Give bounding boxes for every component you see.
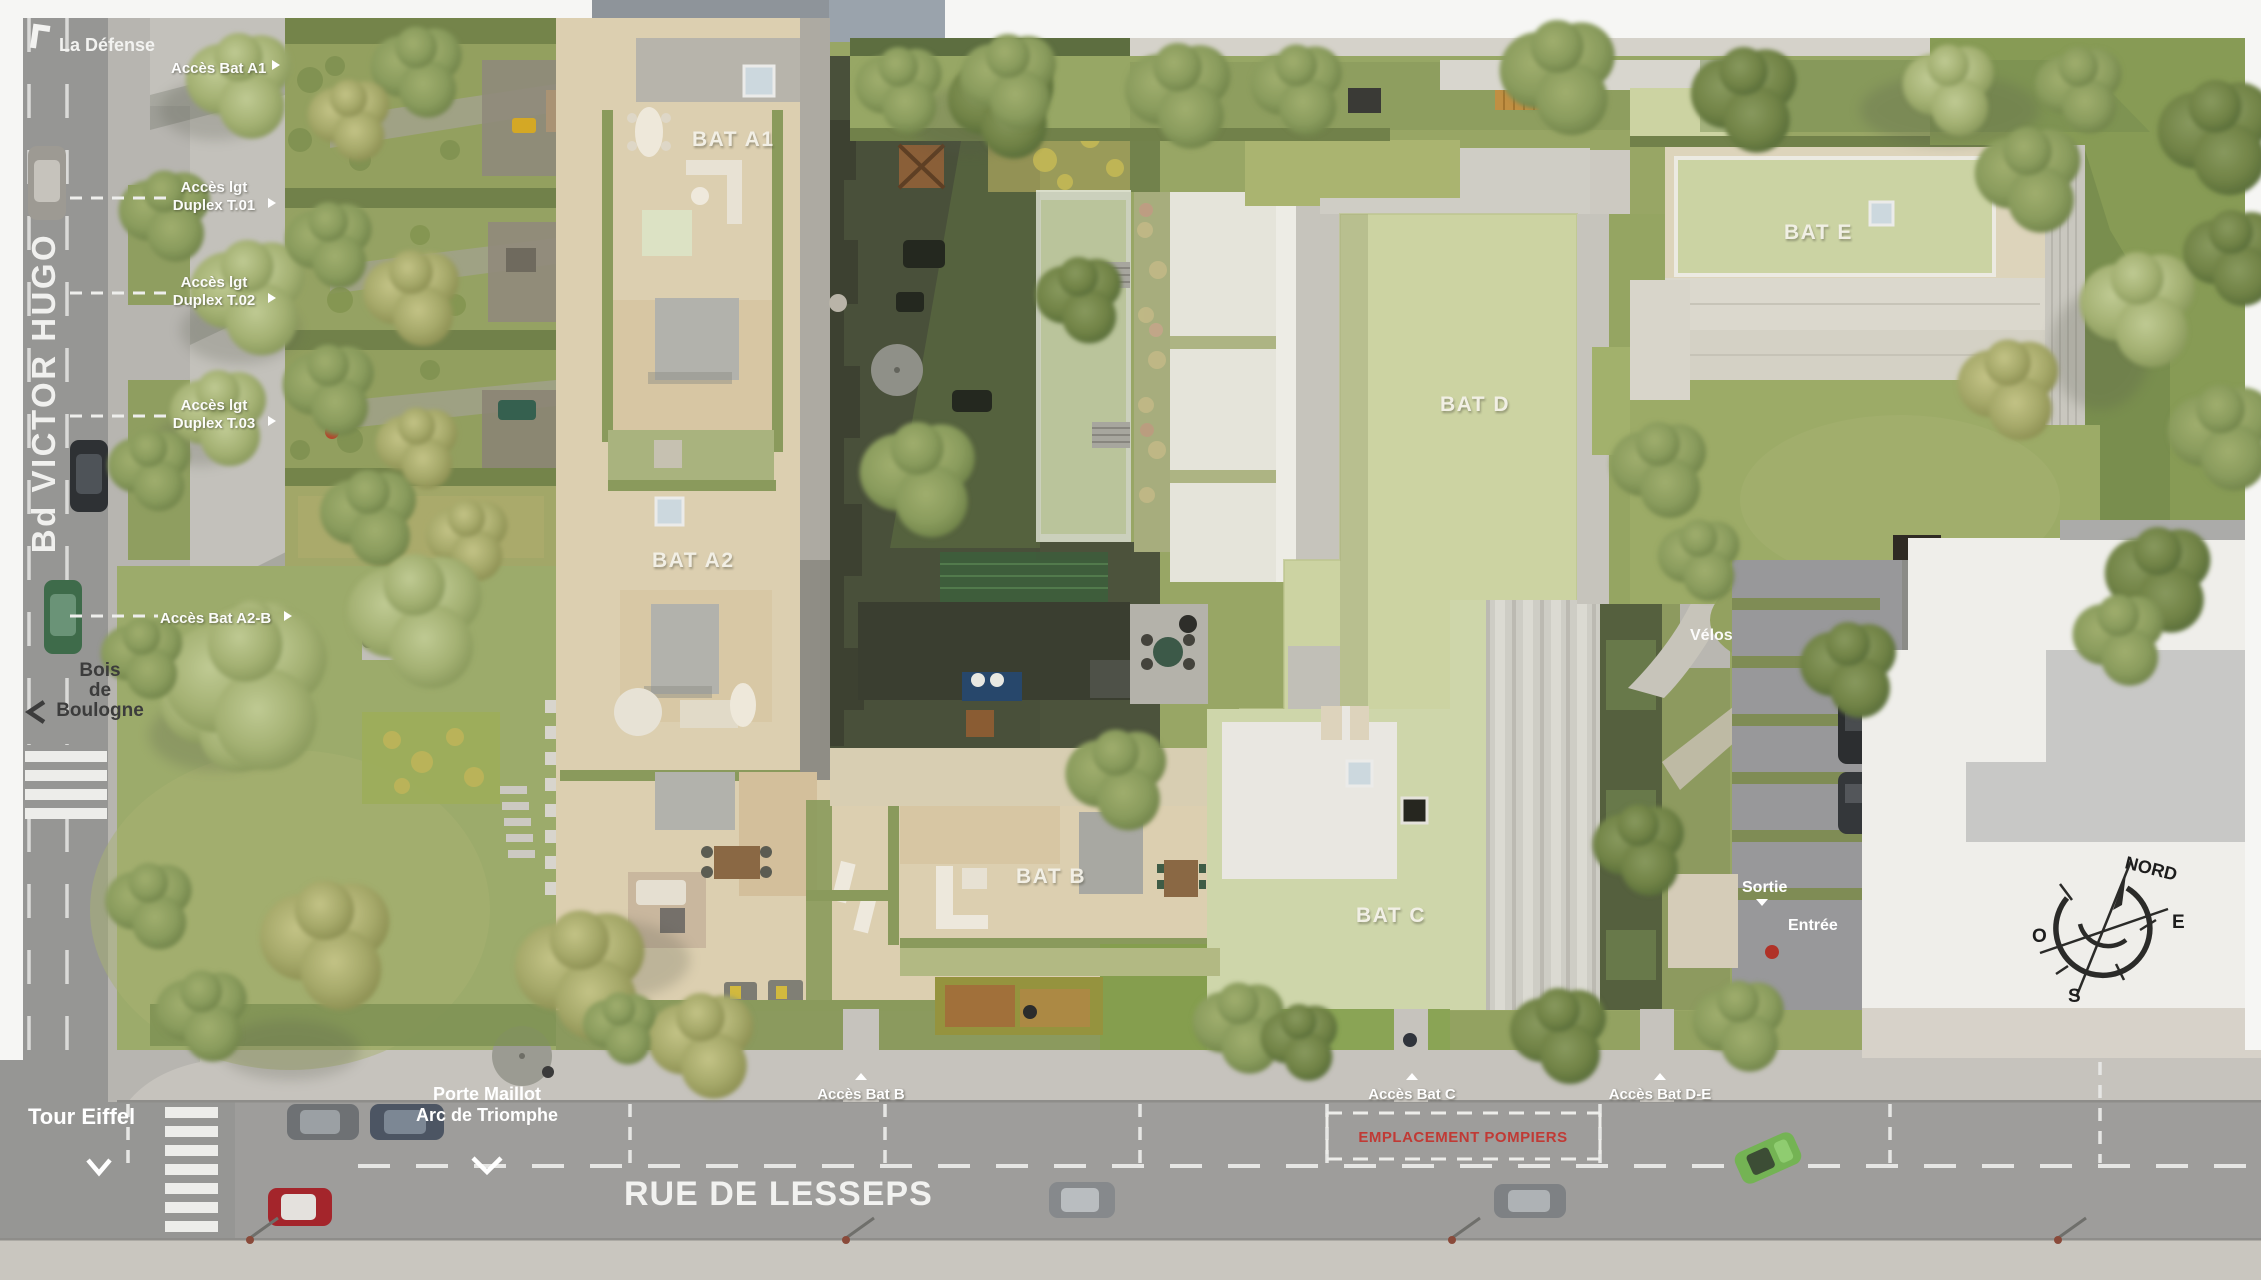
- svg-text:BAT A1: BAT A1: [692, 128, 775, 151]
- svg-text:Sortie: Sortie: [1742, 879, 1787, 896]
- svg-text:Bd VICTOR HUGO: Bd VICTOR HUGO: [25, 233, 62, 553]
- svg-text:Tour Eiffel: Tour Eiffel: [28, 1104, 135, 1129]
- svg-text:BAT B: BAT B: [1016, 865, 1086, 888]
- svg-text:Accès Bat B: Accès Bat B: [817, 1086, 905, 1103]
- svg-text:E: E: [2172, 912, 2185, 933]
- svg-text:BAT A2: BAT A2: [652, 549, 735, 572]
- svg-text:Accès Bat A1: Accès Bat A1: [171, 60, 266, 77]
- svg-text:Entrée: Entrée: [1788, 917, 1838, 934]
- svg-text:Accès lgt: Accès lgt: [181, 397, 248, 414]
- svg-text:Accès Bat A2-B: Accès Bat A2-B: [160, 610, 271, 627]
- svg-text:Accès Bat D-E: Accès Bat D-E: [1609, 1086, 1712, 1103]
- svg-text:Accès lgt: Accès lgt: [181, 274, 248, 291]
- svg-text:Porte Maillot: Porte Maillot: [433, 1084, 541, 1104]
- svg-text:Duplex T.01: Duplex T.01: [173, 197, 256, 214]
- svg-text:Vélos: Vélos: [1690, 627, 1733, 644]
- svg-text:Arc de Triomphe: Arc de Triomphe: [416, 1105, 558, 1125]
- svg-text:Accès Bat C: Accès Bat C: [1368, 1086, 1456, 1103]
- svg-text:de: de: [89, 680, 111, 701]
- svg-text:Boulogne: Boulogne: [56, 700, 144, 721]
- svg-text:Duplex T.02: Duplex T.02: [173, 292, 256, 309]
- svg-text:BAT E: BAT E: [1784, 221, 1853, 244]
- svg-text:La Défense: La Défense: [59, 35, 155, 55]
- svg-text:BAT C: BAT C: [1356, 904, 1426, 927]
- svg-text:RUE DE LESSEPS: RUE DE LESSEPS: [624, 1175, 933, 1213]
- svg-text:Bois: Bois: [79, 660, 120, 681]
- svg-text:S: S: [2068, 986, 2081, 1007]
- svg-text:Duplex T.03: Duplex T.03: [173, 415, 256, 432]
- svg-text:BAT D: BAT D: [1440, 393, 1510, 416]
- svg-text:EMPLACEMENT POMPIERS: EMPLACEMENT POMPIERS: [1358, 1129, 1567, 1146]
- svg-text:Accès lgt: Accès lgt: [181, 179, 248, 196]
- svg-text:O: O: [2032, 926, 2047, 947]
